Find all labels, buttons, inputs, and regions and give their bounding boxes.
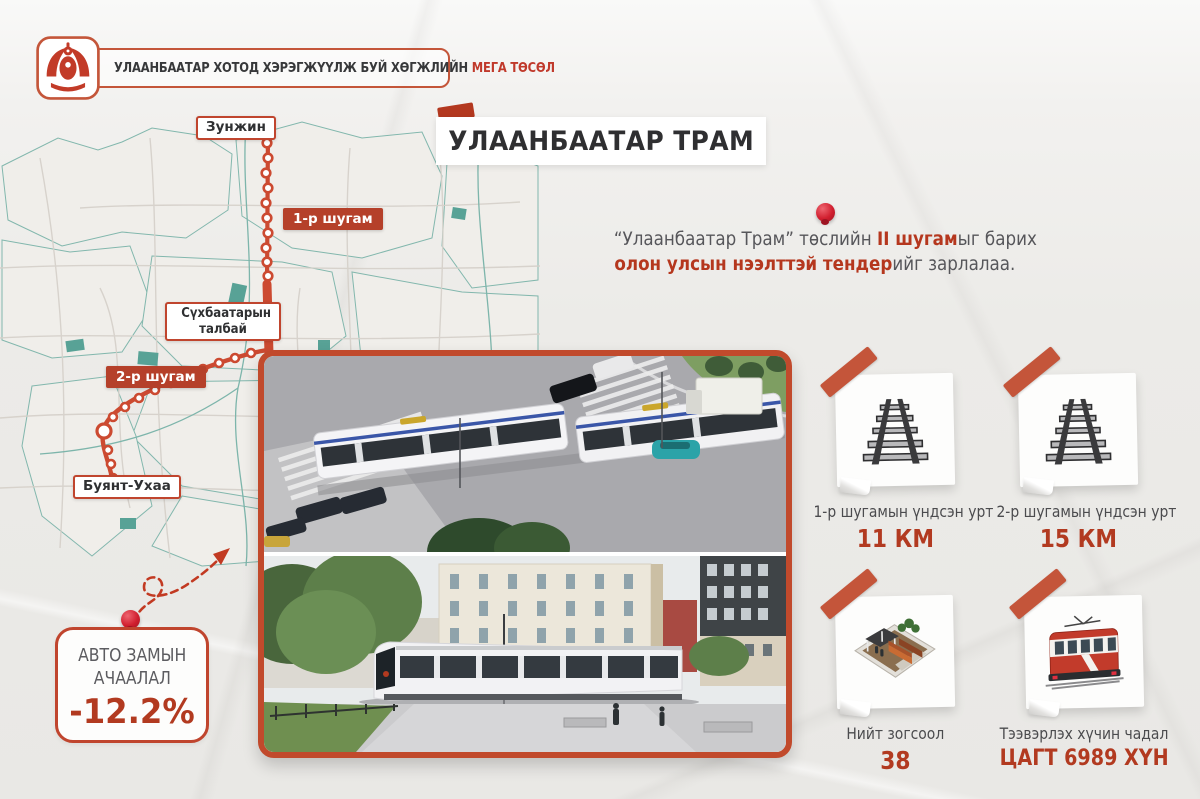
map-label-line1: 1-р шугам [283, 208, 383, 230]
tram-street-render [264, 556, 786, 752]
map-label-line2: 2-р шугам [106, 366, 206, 388]
title-banner: УЛААНБААТАР ТРАМ [436, 117, 766, 165]
tram-stop-icon [852, 609, 938, 695]
stat-card-line1-length: 1-р шугамын үндсэн урт 11 КМ [800, 374, 990, 553]
road-load-box: АВТО ЗАМЫН АЧААЛАЛ -12.2% [55, 627, 209, 743]
railway-track-icon [1037, 389, 1119, 471]
road-load-label-line2: АЧААЛАЛ [58, 668, 206, 691]
sticky-note [835, 373, 955, 487]
announcement-line2-highlight: олон улсын нээлттэй тендер [614, 253, 892, 275]
stat-value: 11 КМ [800, 524, 990, 553]
page-title: УЛААНБААТАР ТРАМ [448, 126, 754, 157]
announcement-text: “Улаанбаатар Трам” төслийн II шугамыг ба… [585, 227, 1045, 277]
sticky-note [1018, 373, 1138, 487]
infographic-poster: Зунжин 1-р шугам Сүхбаатарын талбай 2-р … [0, 0, 1200, 799]
header-badge: УЛААНБААТАР ХОТОД ХЭРЭГЖҮҮЛЖ БУЙ ХӨГЖЛИЙ… [78, 48, 450, 88]
tram-icon [1038, 611, 1130, 693]
railway-track-icon [854, 389, 936, 471]
tram-intersection-render [264, 356, 786, 552]
sticky-note [1024, 595, 1144, 709]
stat-card-total-stops: Нийт зогсоол 38 [800, 596, 990, 775]
stat-label: 1-р шугамын үндсэн урт [800, 502, 990, 521]
map-label-sukhbaatar-square: Сүхбаатарын талбай [165, 302, 281, 341]
tram-render-panel [258, 350, 792, 758]
stat-value: 15 КМ [983, 524, 1173, 553]
stat-value: ЦАГТ 6989 ХҮН [978, 746, 1190, 771]
stat-value: 38 [800, 746, 990, 775]
map-label-buyant-ukhaa: Буянт-Ухаа [73, 475, 181, 499]
road-load-value: -12.2% [69, 692, 194, 732]
header-badge-highlight: МЕГА ТӨСӨЛ [472, 60, 555, 76]
stat-label: 2-р шугамын үндсэн урт [983, 502, 1173, 521]
ulaanbaatar-emblem-icon [36, 36, 100, 100]
pushpin-icon [816, 203, 835, 222]
stat-label: Тээвэрлэх хүчин чадал [978, 724, 1190, 743]
stat-card-line2-length: 2-р шугамын үндсэн урт 15 КМ [983, 374, 1173, 553]
road-load-label-line1: АВТО ЗАМЫН [58, 645, 206, 668]
stat-label: Нийт зогсоол [800, 724, 990, 743]
map-label-zunjin: Зунжин [196, 116, 276, 140]
stat-card-capacity: Тээвэрлэх хүчин чадал ЦАГТ 6989 ХҮН [978, 596, 1190, 771]
header-badge-text: УЛААНБААТАР ХОТОД ХЭРЭГЖҮҮЛЖ БУЙ ХӨГЖЛИЙ… [114, 60, 555, 76]
sticky-note [835, 595, 955, 709]
announcement-line1-highlight: II шугам [877, 228, 958, 250]
